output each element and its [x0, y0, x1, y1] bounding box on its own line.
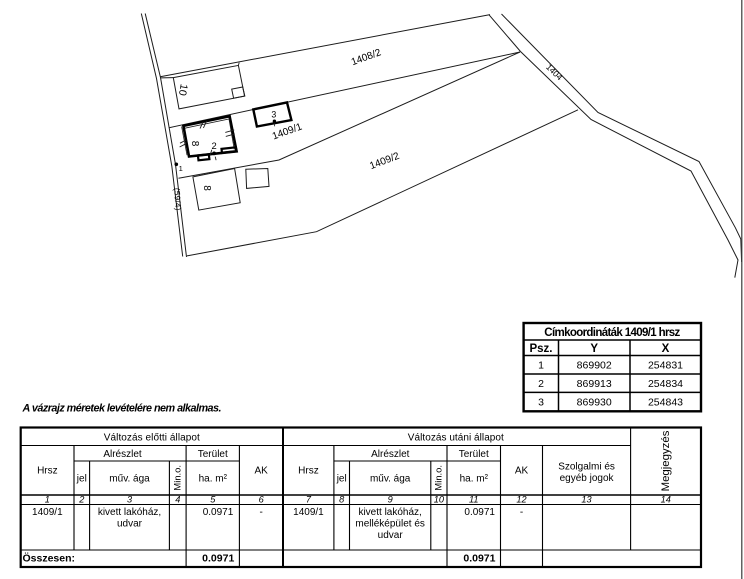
- svg-text:0.0971: 0.0971: [203, 507, 234, 518]
- svg-text:X: X: [662, 343, 670, 355]
- svg-text:10: 10: [434, 495, 445, 505]
- svg-text:udvar: udvar: [117, 519, 143, 530]
- svg-text:4: 4: [175, 495, 180, 505]
- svg-text:1409/1: 1409/1: [293, 507, 324, 518]
- svg-text:udvar: udvar: [378, 530, 404, 541]
- svg-text:AK: AK: [515, 466, 529, 477]
- svg-text:1: 1: [45, 495, 50, 505]
- svg-text:254843: 254843: [648, 397, 683, 409]
- svg-text:-: -: [520, 507, 523, 518]
- svg-text:1404: 1404: [544, 62, 565, 83]
- svg-text:11: 11: [469, 495, 479, 505]
- svg-text:kivett lakóház,: kivett lakóház,: [98, 507, 161, 518]
- svg-text:14: 14: [661, 495, 671, 505]
- svg-text:jel: jel: [76, 474, 87, 485]
- svg-text:A vázrajz méretek levételére n: A vázrajz méretek levételére nem alkalma…: [22, 403, 222, 415]
- svg-text:(59/4): (59/4): [172, 188, 183, 211]
- svg-text:8: 8: [201, 185, 212, 191]
- svg-text:1408/2: 1408/2: [350, 47, 383, 68]
- svg-text:0.0971: 0.0971: [463, 553, 495, 565]
- svg-text:melléképület és: melléképület és: [355, 519, 424, 530]
- svg-text:3: 3: [538, 397, 544, 409]
- svg-text:869930: 869930: [577, 397, 612, 409]
- svg-text:0.0971: 0.0971: [202, 553, 234, 565]
- svg-text:Hrsz: Hrsz: [37, 466, 58, 477]
- svg-text:AK: AK: [255, 466, 269, 477]
- svg-text:Szolgalmi és: Szolgalmi és: [558, 462, 615, 473]
- svg-text:1409/2: 1409/2: [368, 151, 401, 172]
- svg-text:Psz.: Psz.: [529, 343, 552, 355]
- svg-text:10: 10: [176, 83, 190, 97]
- svg-text:2: 2: [78, 495, 84, 505]
- svg-text:jel: jel: [336, 474, 347, 485]
- svg-text:Összesen:: Összesen:: [23, 552, 76, 565]
- svg-text:3: 3: [271, 109, 276, 119]
- svg-text:Min.o.: Min.o.: [432, 465, 443, 491]
- svg-text:1: 1: [179, 164, 183, 173]
- svg-text:Alrészlet: Alrészlet: [103, 449, 142, 460]
- svg-text:Változás előtti állapot: Változás előtti állapot: [104, 432, 200, 443]
- svg-text:kivett lakóház,: kivett lakóház,: [358, 507, 421, 518]
- svg-text:műv. ága: műv. ága: [370, 474, 411, 485]
- svg-text:Min.o.: Min.o.: [171, 465, 182, 491]
- svg-text:869913: 869913: [577, 378, 612, 390]
- svg-text:7: 7: [306, 495, 312, 505]
- svg-text:Címkoordináták 1409/1 hrsz: Címkoordináták 1409/1 hrsz: [544, 327, 680, 339]
- svg-text:1: 1: [538, 360, 544, 372]
- svg-text:1409/1: 1409/1: [32, 507, 63, 518]
- svg-text:13: 13: [581, 495, 592, 505]
- svg-text:869902: 869902: [577, 360, 612, 372]
- svg-text:5: 5: [210, 495, 216, 505]
- svg-text:Megjegyzés: Megjegyzés: [660, 430, 672, 491]
- svg-text:Y: Y: [590, 343, 598, 355]
- svg-text:műv. ága: műv. ága: [109, 474, 150, 485]
- svg-text:ha. m²: ha. m²: [199, 474, 228, 485]
- svg-text:Terület: Terület: [459, 449, 489, 460]
- svg-text:254831: 254831: [648, 360, 683, 372]
- svg-text:ha. m²: ha. m²: [460, 474, 489, 485]
- svg-text:3: 3: [127, 495, 133, 505]
- svg-text:254834: 254834: [648, 378, 683, 390]
- svg-text:8: 8: [339, 495, 345, 505]
- svg-text:1409/1: 1409/1: [271, 121, 304, 142]
- svg-text:Alrészlet: Alrészlet: [371, 449, 410, 460]
- svg-text:egyéb jogok: egyéb jogok: [560, 473, 615, 484]
- svg-text:9: 9: [388, 495, 393, 505]
- svg-text:Hrsz: Hrsz: [298, 466, 319, 477]
- svg-text:12: 12: [516, 495, 526, 505]
- svg-text:6: 6: [259, 495, 265, 505]
- svg-text:2: 2: [211, 140, 216, 151]
- svg-text:8: 8: [189, 141, 200, 147]
- svg-text:-: -: [260, 507, 263, 518]
- svg-text:Terület: Terület: [198, 449, 228, 460]
- svg-text:0.0971: 0.0971: [464, 507, 495, 518]
- svg-text:2: 2: [538, 378, 544, 390]
- svg-text:Változás utáni állapot: Változás utáni állapot: [408, 432, 504, 443]
